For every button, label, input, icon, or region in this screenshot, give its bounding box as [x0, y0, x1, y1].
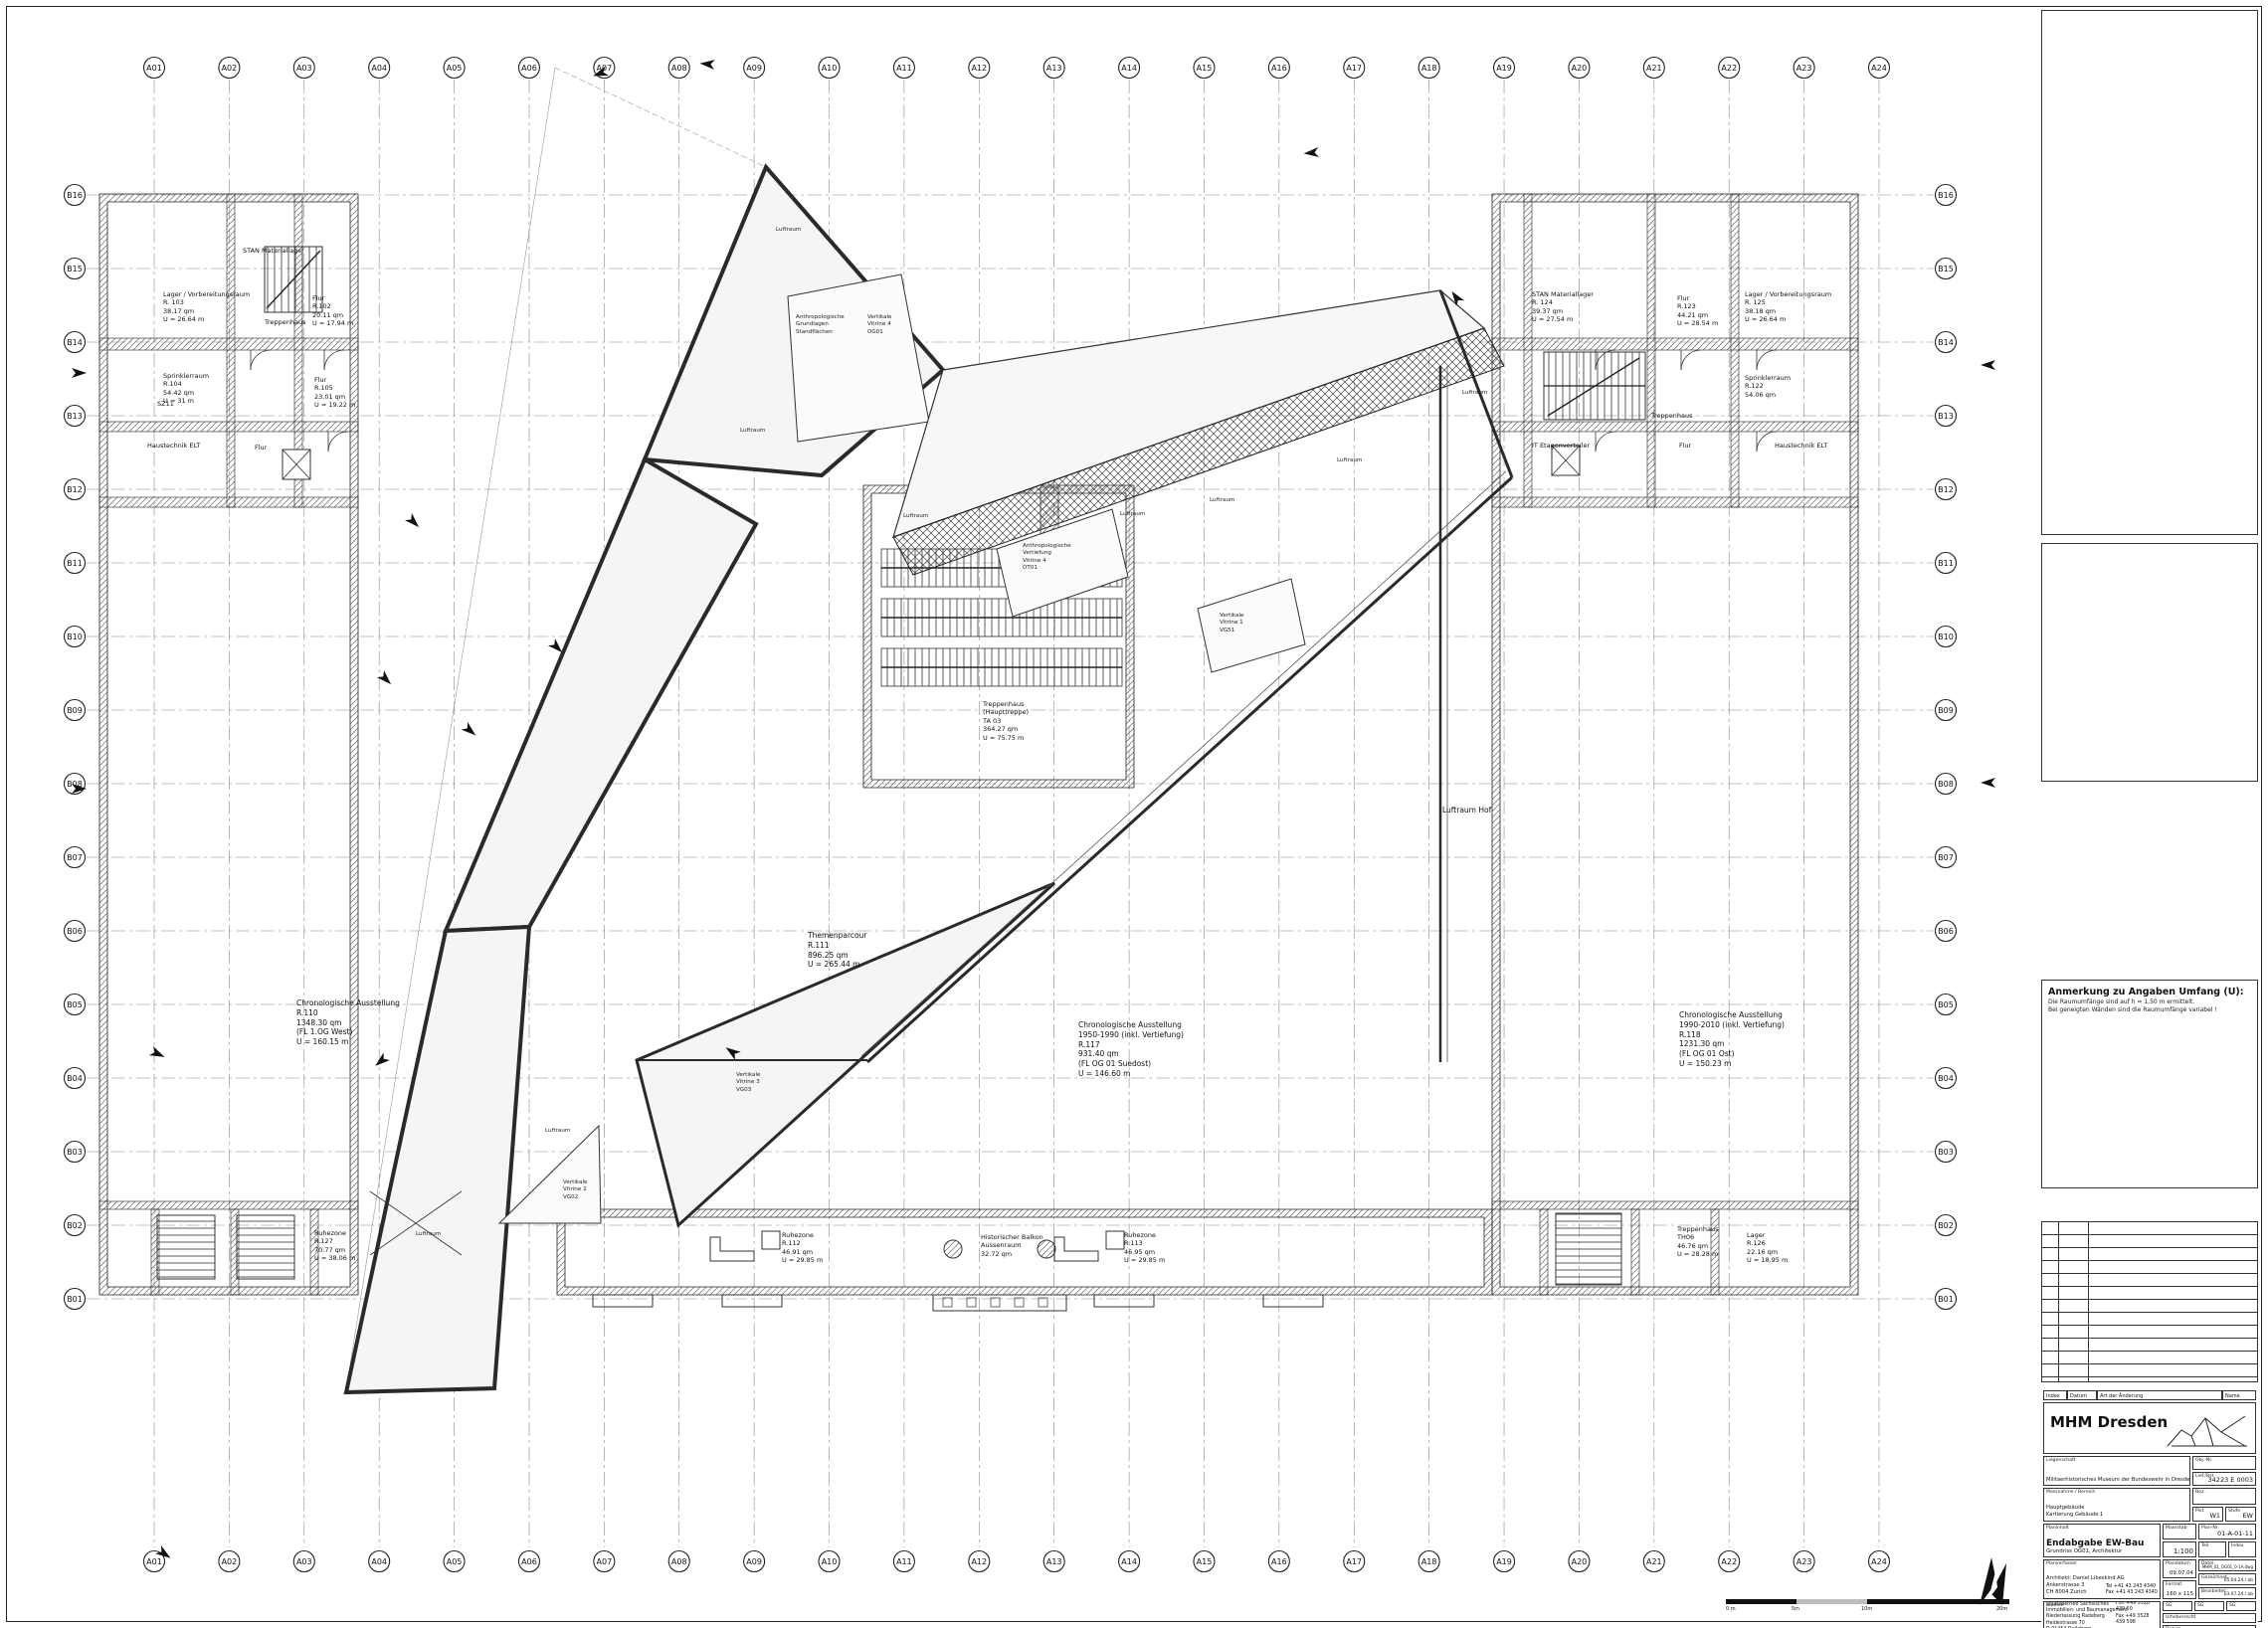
title-row-liegenschaft: Liegenschaft Militaerhistorisches Museum…: [2043, 1456, 2256, 1486]
index-cell: Index: [2228, 1541, 2256, 1557]
sg1-label: SG: [2166, 1603, 2172, 1608]
ruhezone-west-label: RuhezoneR.12770.77 qmU = 38.06 m: [314, 1229, 355, 1263]
luftraum-label: Luftraum: [903, 513, 928, 520]
flur-r105-label: FlurR.10523.01 qmU = 19.22 m: [314, 376, 355, 410]
verfasser-label: Planverfasser: [2046, 1561, 2077, 1566]
plan-subtitle: Grundriss OG01, Architektur: [2046, 1548, 2144, 1554]
haustechnik-ost-label: Haustechnik ELT: [1775, 442, 1827, 450]
teil-label: Teil: [2201, 1543, 2208, 1548]
massstab-value-cell: 1:100: [2163, 1541, 2196, 1557]
format-label: Format: [2166, 1582, 2181, 1587]
ruhezone-mitte1-label: RuhezoneR.11246.91 qmU = 29.85 m: [782, 1231, 823, 1265]
balkon-label: Historischer BalkonAussenraum32.72 qm: [981, 1233, 1043, 1258]
luftraum-label: Luftraum: [1462, 390, 1487, 397]
plst-cell: Plst. W1: [2192, 1507, 2223, 1522]
sprinklerraum-ost-label: SprinklerraumR.12254.06 qm: [1745, 374, 1791, 399]
scale-tick: 0 m: [1726, 1606, 1736, 1612]
title-row-massnahme: Massnahme / Bereich Hauptgebäude Kartier…: [2043, 1488, 2256, 1522]
stufe-cell: Stufe EW: [2225, 1507, 2256, 1522]
note-title: Anmerkung zu Angaben Umfang (U):: [2048, 987, 2251, 997]
plannr-value: 01-A-01-11: [2217, 1530, 2253, 1538]
massstab-cell: Massstab: [2163, 1524, 2196, 1539]
floor-plan-drawing: A01A01A02A02A03A03A04A04A05A05A06A06A07A…: [0, 0, 2033, 1628]
plandatum-value: 09.07.04: [2170, 1570, 2193, 1576]
note-line: Bei geneigten Wänden sind die Raumumfäng…: [2048, 1006, 2251, 1013]
scale-bar: 0 m 5m 10m 20m: [1726, 1599, 2009, 1613]
sg3-cell: SG: [2226, 1601, 2256, 1611]
urheber-label: Urheberrecht: [2166, 1615, 2195, 1620]
verfasser-side: Plandatum 09.07.04 Format 160 x 115 Date…: [2163, 1559, 2256, 1599]
planinhalt-cell: Planinhalt Endabgabe EW-Bau Grundriss OG…: [2043, 1524, 2161, 1557]
verfasser-cell: Planverfasser Architekt: Daniel Libeskin…: [2043, 1559, 2161, 1599]
lager-vorbereitung-west-label: Lager / VorbereitungsraumR. 10338.17 qmU…: [163, 290, 250, 324]
treppenhaus-ost-label: Treppenhaus: [1651, 412, 1693, 420]
rev-datum-header: Datum: [2067, 1390, 2097, 1400]
luftraum-label: Luftraum: [545, 1128, 570, 1135]
anthro-grundlagen-label: AnthropologischeGrundlagenStandflächen: [796, 314, 845, 336]
index-label: Index: [2231, 1543, 2244, 1548]
treppenhaus-th06-label: TreppenhausTH0646.76 qmU = 28.28 m: [1677, 1225, 1719, 1259]
lager-r126-label: LagerR.12622.16 qmU = 18.95 m: [1747, 1231, 1788, 1265]
planinhalt-label: Planinhalt: [2046, 1526, 2069, 1531]
luftraum-label: Luftraum: [1210, 497, 1234, 504]
liefbst-cell: Lief./Bst 34223 E 0003: [2192, 1472, 2256, 1486]
project-title-cell: MHM Dresden: [2043, 1402, 2256, 1454]
legend-box-empty: [2041, 10, 2258, 535]
revision-header: Index Datum Art der Änderung Name: [2043, 1390, 2256, 1400]
massstab-label: Massstab: [2166, 1526, 2187, 1531]
massstab-value: 1:100: [2173, 1547, 2193, 1555]
bez-cell: Bez.: [2192, 1488, 2256, 1505]
plan-title: Endabgabe EW-Bau: [2046, 1538, 2144, 1548]
floor-plan-sheet: A01A01A02A02A03A03A04A04A05A05A06A06A07A…: [0, 0, 2268, 1628]
flur-west2-label: Flur: [255, 444, 267, 452]
hall-suedost-label: Chronologische Ausstellung1950-1990 (ink…: [1078, 1020, 1184, 1079]
stufe-label: Stufe: [2228, 1509, 2240, 1514]
vitrine-vg51-label: VertikaleVitrine 1VG51: [1220, 613, 1243, 634]
scale-tick: 10m: [1861, 1606, 1872, 1612]
flur-r123-label: FlurR.12344.21 qmU = 28.54 m: [1677, 294, 1718, 328]
luftraum-hof-label: Luftraum Hof: [1442, 806, 1491, 815]
haustechnik-west-label: Haustechnik ELT: [147, 442, 200, 450]
format-value: 160 x 115: [2167, 1591, 2193, 1597]
plst-label: Plst.: [2195, 1509, 2205, 1514]
hall-west-label: Chronologische AusstellungR.1101348.30 q…: [296, 998, 400, 1047]
teil-cell: Teil: [2198, 1541, 2226, 1557]
title-block: Index Datum Art der Änderung Name MHM Dr…: [2041, 1388, 2258, 1623]
luftraum-label: Luftraum: [1337, 457, 1362, 464]
luftraum-label: Luftraum: [416, 1231, 441, 1238]
luftraum-label: Luftraum: [740, 428, 765, 435]
bearbeitet-value: 03.07.24 / ab: [2224, 1592, 2253, 1597]
bearbeitet-label: Bearbeitet: [2201, 1589, 2225, 1594]
scale-seg: [1726, 1599, 1796, 1604]
stan-lager-ost-label: STAN MateriallagerR. 12439.37 qmU = 27.5…: [1532, 290, 1594, 324]
lager-vorbereitung-ost-label: Lager / VorbereitungsraumR. 12538.18 qmU…: [1745, 290, 1831, 324]
title-row-verfasser: Planverfasser Architekt: Daniel Libeskin…: [2043, 1559, 2256, 1599]
vitrine-vg03-label: VertikaleVitrine 3VG03: [736, 1072, 760, 1094]
planinhalt-side: Massstab Plan-Nr. 01-A-01-11 1:100 Teil: [2163, 1524, 2256, 1557]
objnr-cell: Obj.-Nr.: [2192, 1456, 2256, 1470]
sg3-label: SG: [2229, 1603, 2235, 1608]
flur-ost2-label: Flur: [1679, 442, 1691, 450]
liegenschaft-label: Liegenschaft: [2046, 1458, 2075, 1463]
bez-label: Bez.: [2195, 1490, 2205, 1495]
room-label-layer: Chronologische AusstellungR.1101348.30 q…: [0, 0, 2033, 1628]
themenparcour-label: ThemenparcourR.111896.25 qmU = 265.44 m: [808, 931, 866, 970]
title-row-planinhalt: Planinhalt Endabgabe EW-Bau Grundriss OG…: [2043, 1524, 2256, 1557]
scale-tick: 5m: [1792, 1606, 1799, 1612]
bauherr-side: SG SG SG Urheberrecht Datum: [2163, 1601, 2256, 1628]
massnahme-label: Massnahme / Bereich: [2046, 1490, 2095, 1495]
liegenschaft-side: Obj.-Nr. Lief./Bst 34223 E 0003: [2192, 1456, 2256, 1486]
luftraum-label: Luftraum: [776, 227, 801, 234]
bauherr-cell: Bauherr Staatsbetrieb Sächsisches Immobi…: [2043, 1601, 2161, 1628]
title-row-logo: MHM Dresden: [2043, 1402, 2256, 1454]
format-cell: Format 160 x 115: [2163, 1580, 2196, 1599]
liegenschaft-value: Militaerhistorisches Museum der Bundeswe…: [2046, 1477, 2190, 1483]
it-etagenverteiler-label: IT Etagenverteiler: [1532, 442, 1590, 450]
gezeichnet-value: 05.04.24 / ab: [2224, 1578, 2253, 1583]
vitrine-og01-label: VertikaleVitrine 4OG01: [867, 314, 891, 336]
title-row-bauherr: Bauherr Staatsbetrieb Sächsisches Immobi…: [2043, 1601, 2256, 1628]
treppenhaus-west-label: Treppenhaus: [265, 318, 306, 326]
sg2-label: SG: [2197, 1603, 2203, 1608]
massnahme-line2: Kartierung Gebäude 1: [2046, 1512, 2103, 1519]
side-panel: Anmerkung zu Angaben Umfang (U): Die Rau…: [2037, 0, 2264, 1628]
flur-r102-label: FlurR.10220.11 qmU = 17.94 m: [312, 294, 353, 328]
datei-value: MHM_01_OG01_0-1A.dwg: [2202, 1564, 2253, 1569]
ruhezone-mitte2-label: RuhezoneR.11346.95 qmU = 29.85 m: [1124, 1231, 1165, 1265]
revision-table: [2041, 1221, 2258, 1382]
liefbst-value: 34223 E 0003: [2208, 1476, 2253, 1484]
plannr-cell: Plan-Nr. 01-A-01-11: [2198, 1524, 2256, 1539]
note-line: Die Raumumfänge sind auf h = 1,50 m ermi…: [2048, 998, 2251, 1005]
sz11-label: SZ11: [157, 400, 174, 408]
haupttreppe-label: Treppenhaus(Haupttreppe)TA 03364.27 qmU …: [983, 700, 1029, 742]
verfasser-fax: Fax +41 43 243 4340: [2106, 1590, 2158, 1596]
rev-index-header: Index: [2043, 1390, 2067, 1400]
bauherr-fon: Fon +49 3528 439 50: [2116, 1601, 2160, 1613]
gezeichnet-cell: Gezeichnet 05.04.24 / ab: [2198, 1573, 2256, 1585]
vitrine-vg02-label: VertikaleVitrine 2VG02: [563, 1179, 587, 1201]
sg1-cell: SG: [2163, 1601, 2192, 1611]
stan-lager-west-label: STAN Materiallager: [243, 247, 304, 255]
bearbeitet-cell: Bearbeitet 03.07.24 / ab: [2198, 1587, 2256, 1599]
datei-cell: Datei MHM_01_OG01_0-1A.dwg: [2198, 1559, 2256, 1571]
plandatum-cell: Plandatum 09.07.04: [2163, 1559, 2196, 1578]
sg2-cell: SG: [2194, 1601, 2224, 1611]
massnahme-cell: Massnahme / Bereich Hauptgebäude Kartier…: [2043, 1488, 2190, 1522]
legend-box-empty2: [2041, 543, 2258, 782]
bauherr-fax: Fax +49 3528 439 598: [2116, 1614, 2160, 1626]
massnahme-line1: Hauptgebäude: [2046, 1505, 2103, 1512]
building-sketch-icon: [2162, 1406, 2253, 1452]
anthro-vertiefung-label: AnthropologischeVertiefungVitrine 4OT01: [1023, 543, 1071, 572]
objnr-label: Obj.-Nr.: [2195, 1458, 2212, 1463]
rev-art-header: Art der Änderung: [2097, 1390, 2222, 1400]
revision-table-divider: [2088, 1222, 2089, 1381]
scale-seg: [1867, 1599, 2009, 1604]
stufe-value: EW: [2242, 1512, 2253, 1520]
verfasser-tel: Tel +41 43 243 4340: [2106, 1584, 2158, 1590]
luftraum-label: Luftraum: [1120, 511, 1145, 518]
massnahme-side: Bez. Plst. W1 Stufe EW: [2192, 1488, 2256, 1522]
rev-name-header: Name: [2222, 1390, 2256, 1400]
scale-tick: 20m: [1996, 1606, 2007, 1612]
scale-seg: [1796, 1599, 1867, 1604]
hall-ost-label: Chronologische Ausstellung1990-2010 (ink…: [1679, 1010, 1785, 1069]
verfasser-line1: Architekt: Daniel Libeskind AG: [2046, 1575, 2125, 1582]
revision-table-divider: [2058, 1222, 2059, 1381]
plandatum-label: Plandatum: [2166, 1561, 2190, 1566]
liegenschaft-cell: Liegenschaft Militaerhistorisches Museum…: [2043, 1456, 2190, 1486]
note-box: Anmerkung zu Angaben Umfang (U): Die Rau…: [2041, 980, 2258, 1188]
plst-value: W1: [2209, 1512, 2220, 1520]
urheber-cell: Urheberrecht: [2163, 1613, 2256, 1623]
